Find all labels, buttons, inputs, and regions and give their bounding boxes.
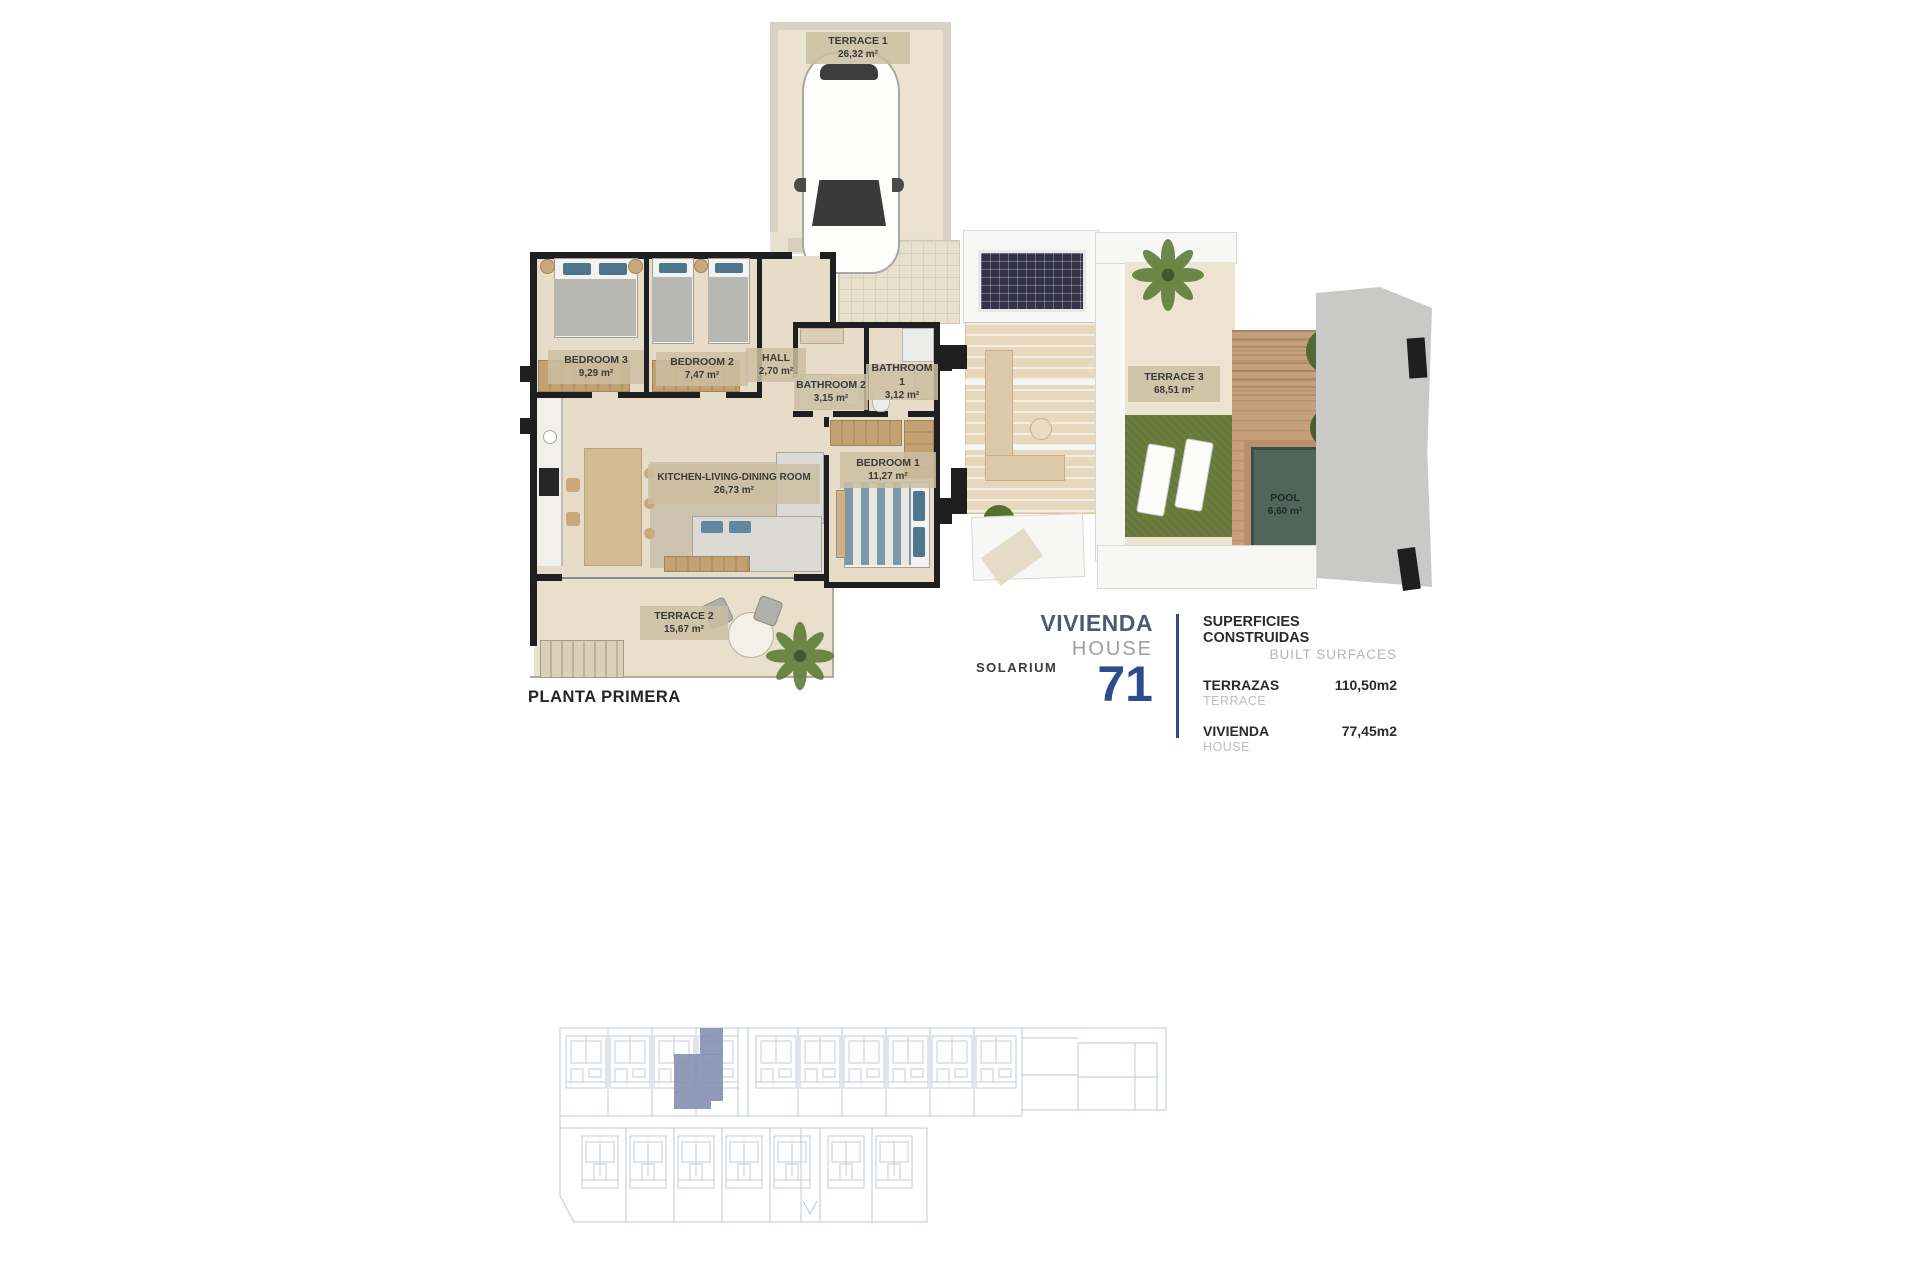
- unit-label-es: VIVIENDA: [1035, 610, 1153, 637]
- room-name: BATHROOM 1: [868, 362, 936, 389]
- room-label-bathroom1: BATHROOM 1 3,12 m²: [866, 364, 938, 400]
- bedroom1-bed: [844, 482, 930, 568]
- room-name: BEDROOM 1: [856, 457, 920, 471]
- site-plan-units-top: [566, 1036, 1016, 1088]
- unit-heading: VIVIENDA HOUSE 71: [1035, 610, 1153, 709]
- bathroom1-shower: [902, 328, 934, 362]
- wall-bedrooms-bottom-b: [618, 392, 700, 398]
- site-plan-units-bottom: [582, 1136, 912, 1188]
- room-name: BEDROOM 3: [564, 354, 628, 368]
- terrace2-palm-icon: [762, 618, 838, 694]
- solarium-ac-left-2: [951, 468, 967, 514]
- room-area: 7,47 m²: [685, 369, 719, 382]
- room-area: 15,67 m²: [664, 623, 704, 636]
- room-label-bedroom1: BEDROOM 1 11,27 m²: [840, 452, 936, 488]
- surfaces-title-es: SUPERFICIES CONSTRUIDAS: [1203, 614, 1397, 646]
- room-label-bedroom2: BEDROOM 2 7,47 m²: [656, 352, 748, 386]
- surfaces-title-en: BUILT SURFACES: [1203, 647, 1397, 662]
- room-area: 26,32 m²: [838, 48, 878, 61]
- island-chair-2: [566, 512, 580, 526]
- pergola-table: [1030, 418, 1052, 440]
- info-divider: [1176, 614, 1179, 738]
- site-plan: [552, 1016, 1180, 1248]
- wall-hall-right: [830, 252, 836, 330]
- car: [802, 52, 900, 274]
- room-area: 3,15 m²: [814, 392, 848, 405]
- room-label-kitchen: KITCHEN-LIVING-DINING ROOM 26,73 m²: [648, 464, 820, 504]
- bathroom2-sink: [800, 328, 844, 344]
- room-area: 11,27 m²: [868, 470, 907, 483]
- wall-bed1-left-a: [824, 417, 829, 427]
- surfaces-row-house: VIVIENDA 77,45m2: [1203, 723, 1397, 739]
- bedroom2-nightstand: [694, 259, 708, 273]
- wall-bed1-bottom: [824, 582, 940, 588]
- surfaces-row-terrace: TERRAZAS 110,50m2: [1203, 677, 1397, 693]
- surfaces-row-value: 110,50m2: [1335, 677, 1397, 693]
- room-name: TERRACE 3: [1144, 371, 1204, 385]
- car-body: [802, 52, 900, 274]
- car-mirror-right: [892, 178, 904, 192]
- room-name: TERRACE 1: [828, 35, 888, 49]
- bedroom3-lamp-right: [628, 259, 643, 274]
- glass-sliding-door: [562, 577, 794, 579]
- roof-band-bottom: [1097, 545, 1317, 589]
- deck-steps: [1232, 330, 1316, 400]
- room-area: 3,12 m²: [885, 389, 919, 402]
- surfaces-row-label-en: HOUSE: [1203, 740, 1397, 754]
- room-name: POOL: [1270, 492, 1300, 506]
- bedroom1-bench: [836, 490, 846, 558]
- solar-panel: [978, 250, 1086, 312]
- pergola-sofa-seat: [985, 455, 1065, 481]
- kitchen-sink: [543, 430, 557, 444]
- wall-bedroom3-bedroom2: [644, 252, 649, 398]
- room-area: 26,73 m²: [714, 484, 754, 497]
- room-label-terrace3: TERRACE 3 68,51 m²: [1128, 366, 1220, 402]
- wall-hall-top-a: [762, 252, 792, 259]
- room-area: 68,51 m²: [1154, 384, 1194, 397]
- ac-unit-left-2: [520, 418, 530, 434]
- surfaces-row-value: 77,45m2: [1342, 723, 1397, 739]
- island-stool-3: [644, 528, 655, 539]
- island-chair-1: [566, 478, 580, 492]
- bedroom1-closet-top: [830, 420, 902, 446]
- room-label-terrace1: TERRACE 1 26,32 m²: [806, 32, 910, 64]
- car-rear-window: [820, 64, 878, 80]
- living-sideboard: [664, 556, 750, 572]
- room-name: HALL: [762, 352, 790, 366]
- wall-bed1-left-b: [824, 455, 829, 588]
- bedroom3-lamp-left: [540, 259, 555, 274]
- room-name: BEDROOM 2: [670, 356, 734, 370]
- floor-plan-title: PLANTA PRIMERA: [528, 688, 681, 707]
- unit-number: 71: [1035, 661, 1153, 709]
- wall-bath-bottom-a: [793, 411, 813, 417]
- room-label-bathroom2: BATHROOM 2 3,15 m²: [794, 374, 868, 410]
- terrace2-stairs: [540, 640, 624, 678]
- solarium-ac-left-1: [951, 345, 967, 369]
- gray-roof-right: [1316, 287, 1432, 587]
- pergola-sofa-side: [985, 350, 1013, 472]
- wall-left: [530, 252, 537, 646]
- car-windshield: [812, 180, 886, 226]
- room-name: TERRACE 2: [654, 610, 714, 624]
- bedroom2-bed-right: [708, 258, 750, 344]
- room-area: 2,70 m²: [759, 365, 793, 378]
- kitchen-appliance: [539, 468, 559, 496]
- room-area: 9,29 m²: [579, 367, 613, 380]
- surfaces-row-label-en: TERRACE: [1203, 694, 1397, 708]
- room-name: BATHROOM 2: [796, 379, 866, 393]
- room-name: KITCHEN-LIVING-DINING ROOM: [657, 471, 810, 484]
- surfaces-row-label-es: VIVIENDA: [1203, 723, 1269, 739]
- site-plan-boundary: [560, 1028, 1166, 1222]
- room-label-pool: POOL 6,60 m²: [1252, 488, 1318, 522]
- solarium-palm-icon: [1128, 235, 1208, 315]
- roof-mid-strip: [1095, 260, 1127, 562]
- brochure-page: TERRACE 1 26,32 m² BEDROOM 3 9,29 m² BED…: [0, 0, 1920, 1280]
- bedroom2-bed-left: [652, 258, 694, 344]
- roof-black-unit-1: [1407, 337, 1428, 378]
- room-label-bedroom3: BEDROOM 3 9,29 m²: [548, 350, 644, 384]
- wall-terrace-a: [530, 574, 562, 581]
- surfaces-row-label-es: TERRAZAS: [1203, 677, 1279, 693]
- wall-terrace-b: [794, 574, 824, 581]
- car-mirror-left: [794, 178, 806, 192]
- bedroom3-bed: [554, 258, 638, 338]
- built-surfaces-panel: SUPERFICIES CONSTRUIDAS BUILT SURFACES T…: [1203, 614, 1397, 754]
- ac-unit-left-1: [520, 366, 530, 382]
- kitchen-island: [584, 448, 642, 566]
- room-area: 6,60 m²: [1268, 505, 1302, 518]
- room-label-terrace2: TERRACE 2 15,67 m²: [640, 606, 728, 640]
